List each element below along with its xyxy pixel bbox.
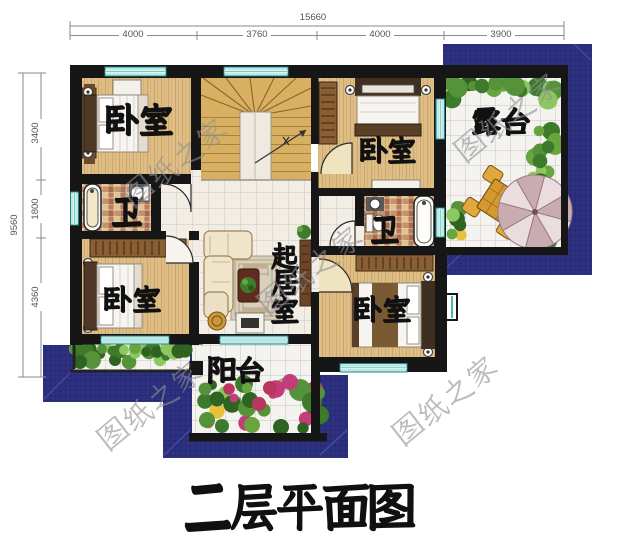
svg-text:3400: 3400 [30, 122, 41, 143]
svg-text:4000: 4000 [122, 29, 143, 40]
svg-text:3900: 3900 [490, 29, 511, 40]
svg-text:1800: 1800 [30, 198, 41, 219]
svg-text:9560: 9560 [9, 214, 20, 235]
svg-text:3760: 3760 [246, 29, 267, 40]
svg-text:15660: 15660 [300, 12, 326, 23]
svg-text:4360: 4360 [30, 286, 41, 307]
svg-text:4000: 4000 [369, 29, 390, 40]
